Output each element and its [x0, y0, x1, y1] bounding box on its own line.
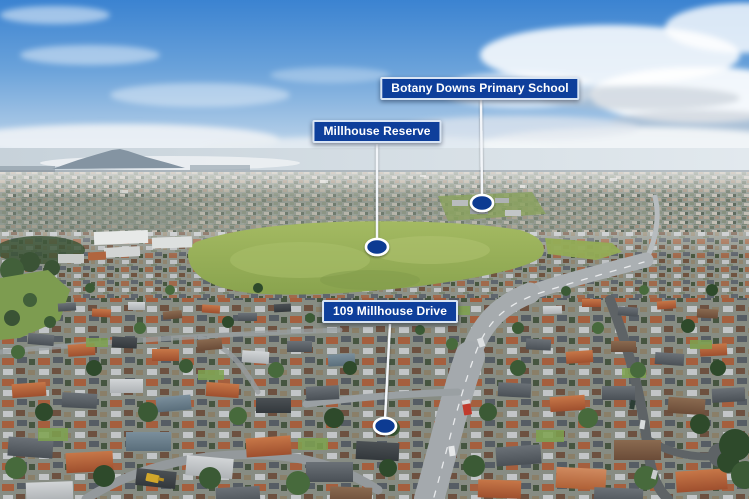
aerial-photo: Botany Downs Primary School Millhouse Re…: [0, 0, 749, 499]
map-label-reserve: Millhouse Reserve: [312, 120, 441, 143]
map-label-property: 109 Millhouse Drive: [322, 300, 458, 323]
aerial-scene: [0, 0, 749, 499]
map-label-school: Botany Downs Primary School: [380, 77, 579, 100]
far-headland: [190, 165, 250, 170]
